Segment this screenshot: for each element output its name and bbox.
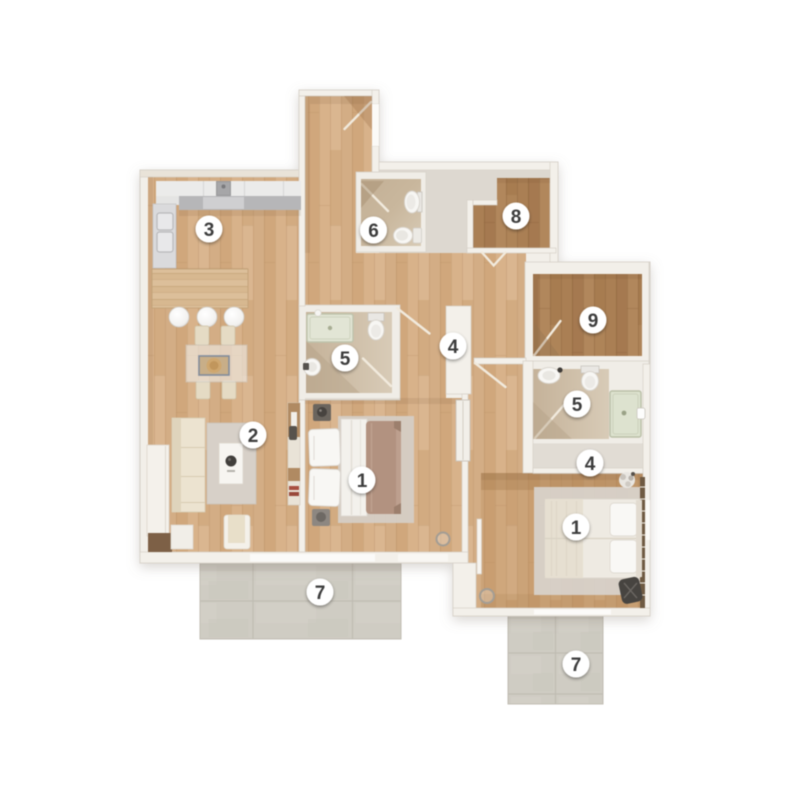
- svg-text:1: 1: [571, 518, 582, 539]
- svg-text:5: 5: [340, 349, 351, 370]
- svg-text:7: 7: [315, 583, 326, 604]
- svg-text:9: 9: [588, 311, 599, 332]
- svg-text:1: 1: [357, 471, 368, 492]
- svg-text:6: 6: [368, 221, 379, 242]
- svg-text:4: 4: [448, 337, 459, 358]
- svg-text:3: 3: [204, 220, 215, 241]
- svg-text:2: 2: [248, 426, 259, 447]
- svg-text:7: 7: [571, 655, 582, 676]
- svg-text:5: 5: [572, 395, 583, 416]
- svg-text:8: 8: [511, 207, 522, 228]
- svg-text:4: 4: [585, 454, 596, 475]
